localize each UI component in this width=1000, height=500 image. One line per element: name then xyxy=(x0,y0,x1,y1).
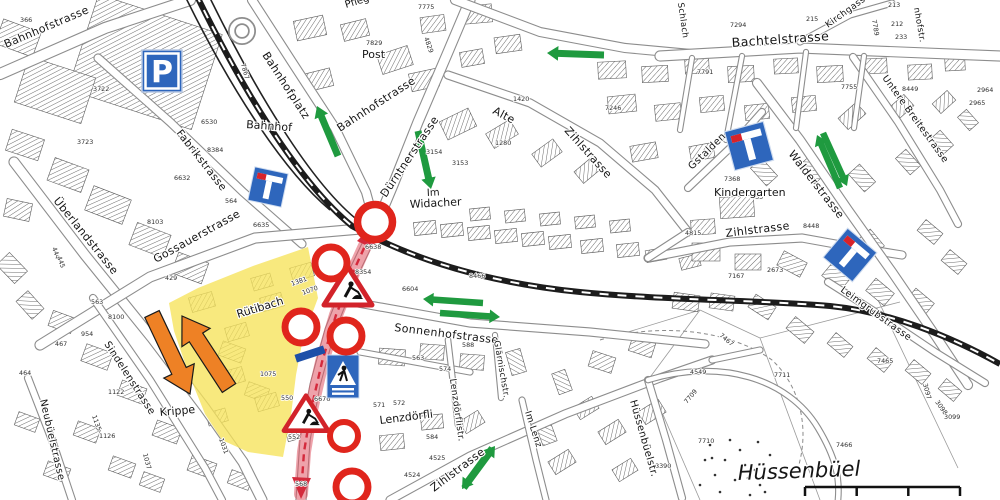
parcel-number: 550 xyxy=(281,394,293,402)
building xyxy=(908,64,933,80)
parcel-number: 7466 xyxy=(836,441,852,449)
road-closed-sign xyxy=(285,311,317,343)
parcel-number: 571 xyxy=(373,401,385,409)
parcel-number: 464 xyxy=(19,369,31,377)
building xyxy=(616,242,639,257)
building xyxy=(504,209,525,223)
parcel-number: 429 xyxy=(165,274,177,282)
parcel-number: 1420 xyxy=(513,95,529,103)
road-closed-sign xyxy=(336,471,368,500)
building xyxy=(699,95,724,112)
place-label-huessenbuel: Hüssenbüel xyxy=(737,457,861,485)
parcel-number: 6632 xyxy=(174,174,190,182)
parcel-number: 568 xyxy=(295,480,307,488)
pedestrian-crossing-sign xyxy=(327,355,359,398)
map-viewport[interactable]: 3663722372365308384786777757829482914201… xyxy=(0,0,1000,500)
building xyxy=(440,222,463,237)
building xyxy=(413,220,436,235)
parcel-number: 4815 xyxy=(685,229,701,237)
parcel-number: 8354 xyxy=(355,268,371,276)
parcel-number: 8449 xyxy=(902,85,918,93)
parcel-number: 7791 xyxy=(697,68,713,76)
parcel-number: 7167 xyxy=(728,272,744,280)
parcel-number: 366 xyxy=(20,16,32,24)
building xyxy=(469,207,490,221)
building xyxy=(494,228,517,243)
building xyxy=(735,254,761,270)
parking-sign: P xyxy=(142,50,182,92)
parcel-number: 572 xyxy=(393,399,405,407)
parcel-number: 3153 xyxy=(452,159,468,167)
parcel-number: 6638 xyxy=(365,243,381,251)
parcel-number: 215 xyxy=(806,15,818,23)
parcel-number: 8103 xyxy=(147,218,163,226)
parcel-number: 563 xyxy=(412,354,424,362)
building xyxy=(580,238,603,253)
parcel-number: 7246 xyxy=(605,104,621,112)
parcel-number: 1075 xyxy=(260,370,276,378)
parcel-number: 8466 xyxy=(469,272,485,280)
parcel-number: 7829 xyxy=(366,39,382,47)
road-closed-sign xyxy=(330,320,362,352)
parcel-number: 3154 xyxy=(426,148,442,156)
building xyxy=(609,219,630,233)
construction-plan-map: 3663722372365308384786777757829482914201… xyxy=(0,0,1000,500)
building xyxy=(654,103,682,122)
building xyxy=(420,14,446,33)
parcel-number: 574 xyxy=(439,365,451,373)
parcel-number: 6604 xyxy=(402,285,418,293)
parcel-number: 3099 xyxy=(944,413,960,421)
building xyxy=(791,95,816,112)
road-closed-sign xyxy=(358,205,393,240)
parcel-number: 7465 xyxy=(877,357,893,365)
parcel-number: 2673 xyxy=(767,266,783,274)
parcel-number: 1280 xyxy=(495,139,511,147)
parcel-number: 7368 xyxy=(724,175,740,183)
building xyxy=(548,234,571,249)
parcel-number: 7775 xyxy=(418,3,434,11)
building xyxy=(379,433,404,450)
building xyxy=(539,212,560,226)
parcel-number: 4549 xyxy=(690,368,706,376)
parcel-number: 8448 xyxy=(803,222,819,230)
parcel-number: 212 xyxy=(891,20,903,28)
road-closed-sign xyxy=(315,247,347,279)
building xyxy=(774,58,799,74)
parcel-number: 2965 xyxy=(969,99,985,107)
parcel-number: 563 xyxy=(91,298,103,306)
building xyxy=(467,225,490,240)
parcel-number: 1126 xyxy=(99,432,115,440)
building xyxy=(574,215,595,229)
parcel-number: 7710 xyxy=(698,437,714,445)
parcel-number: 233 xyxy=(895,33,907,41)
parcel-number: 564 xyxy=(225,197,237,205)
building xyxy=(521,231,544,246)
parcel-number: 4524 xyxy=(404,471,420,479)
building xyxy=(494,34,522,53)
parking-letter: P xyxy=(151,55,173,90)
parcel-number: 954 xyxy=(81,330,93,338)
parcel-number: 4525 xyxy=(429,454,445,462)
parcel-number: 7755 xyxy=(841,83,857,91)
parcel-number: 6530 xyxy=(201,118,217,126)
building xyxy=(642,65,669,82)
place-label-post: Post xyxy=(362,48,386,61)
place-label-im-widacher-2: Widacher xyxy=(409,195,462,211)
parcel-number: 7294 xyxy=(730,21,746,29)
place-label-kindergarten: Kindergarten xyxy=(714,186,786,199)
building xyxy=(598,61,627,79)
road-closed-sign xyxy=(330,422,358,450)
parcel-number: 467 xyxy=(55,340,67,348)
parcel-number: 3723 xyxy=(77,138,93,146)
parcel-number: 7711 xyxy=(774,371,790,379)
parcel-number: 8384 xyxy=(207,146,223,154)
dead-end-sign xyxy=(248,167,288,207)
building xyxy=(817,65,844,82)
parcel-number: 1122 xyxy=(108,388,124,396)
parcel-number: 213 xyxy=(888,1,900,9)
parcel-number: 6635 xyxy=(253,221,269,229)
parcel-number: 552 xyxy=(288,433,300,441)
parcel-number: 3722 xyxy=(93,85,109,93)
parcel-number: 584 xyxy=(426,433,438,441)
parcel-number: 2964 xyxy=(977,86,993,94)
parcel-number: 8100 xyxy=(108,313,124,321)
